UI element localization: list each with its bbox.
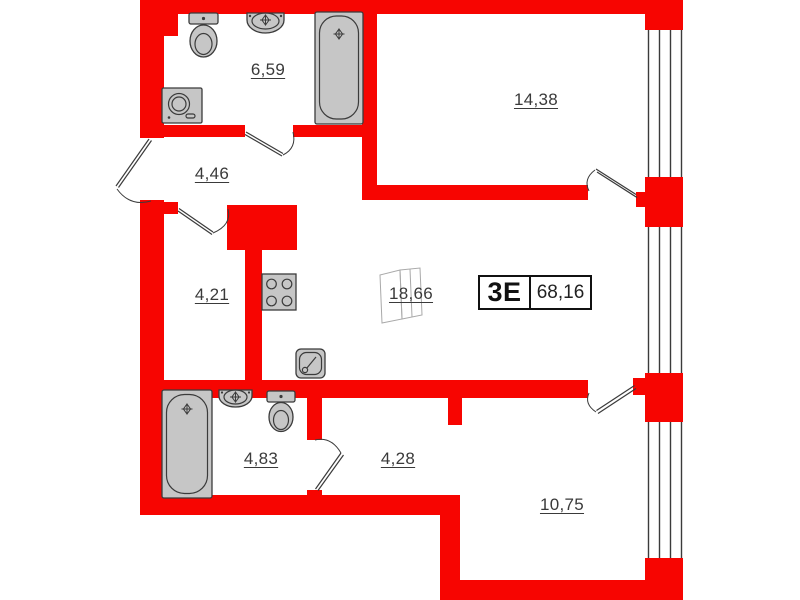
washing-machine-icon [162,88,202,123]
room-label-bedroom-top: 14,38 [514,90,558,110]
sink-top-icon [247,13,284,33]
room-label-corridor: 4,28 [381,449,415,469]
bathtub-top-icon [315,12,363,124]
storage-door [178,209,229,235]
kitchen-sink-icon [296,349,325,378]
unit-type-label: 3Е [478,275,531,310]
entrance-door [116,139,152,203]
room-label-bathroom-top: 6,59 [251,60,285,80]
floor-plan: 6,59 14,38 4,46 4,21 18,66 4,83 4,28 10,… [0,0,800,600]
bedroom-bottom-door [588,386,636,414]
room-label-bedroom-bottom: 10,75 [540,495,584,515]
room-label-kitchen-living: 18,66 [389,284,433,304]
toilet-bottom-icon [267,391,295,432]
room-label-storage: 4,21 [195,285,229,305]
bathroom-top-door [245,132,294,156]
window-glazing [649,30,682,558]
bathroom-bottom-door [315,439,344,490]
bedroom-top-door [587,169,637,198]
room-label-hallway: 4,46 [195,164,229,184]
room-label-bathroom-bottom: 4,83 [244,449,278,469]
unit-badge: 3Е 68,16 [478,275,592,310]
toilet-top-icon [189,13,218,57]
bathtub-bottom-icon [162,390,212,498]
unit-total-area: 68,16 [529,275,592,310]
stove-icon [262,274,296,310]
sink-bottom-icon [219,390,252,407]
